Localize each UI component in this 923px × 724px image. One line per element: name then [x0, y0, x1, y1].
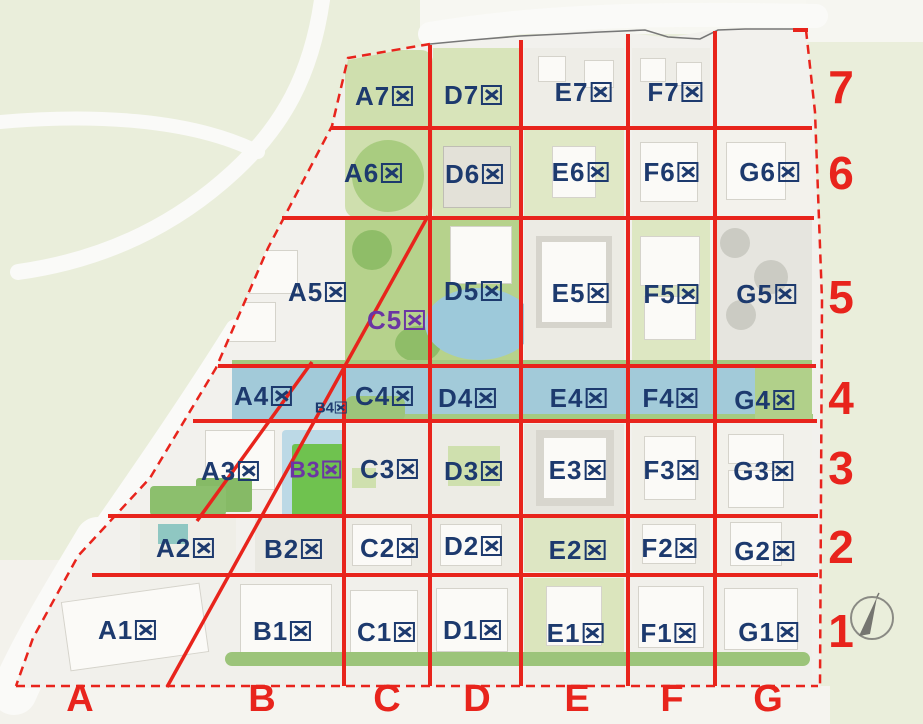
qu-district-character	[397, 459, 418, 480]
zone-label-a4: A4	[234, 383, 292, 409]
qu-district-character	[325, 282, 346, 303]
column-letter-c: C	[373, 680, 400, 718]
zone-label-d4: D4	[438, 385, 496, 411]
zone-label-e2: E2	[549, 537, 606, 563]
qu-district-character	[678, 284, 699, 305]
qu-district-character	[290, 621, 311, 642]
qu-district-character	[682, 82, 703, 103]
qu-district-character	[481, 281, 502, 302]
zone-code-text: A2	[156, 533, 191, 563]
zone-code-text: A6	[344, 158, 379, 188]
qu-district-character	[583, 623, 604, 644]
zone-label-c4: C4	[355, 383, 413, 409]
qu-district-character	[322, 460, 340, 478]
qu-district-character	[238, 461, 259, 482]
column-letter-b: B	[248, 680, 275, 718]
column-letter-g: G	[753, 680, 783, 718]
qu-district-character	[392, 386, 413, 407]
zone-label-c2: C2	[360, 535, 418, 561]
row-number-4: 4	[828, 375, 854, 421]
zone-code-text: E7	[555, 77, 589, 107]
zone-label-g5: G5	[736, 281, 796, 307]
zone-label-a1: A1	[98, 617, 156, 643]
qu-district-character	[588, 283, 609, 304]
zone-code-text: C1	[357, 617, 392, 647]
qu-district-character	[772, 461, 793, 482]
zone-code-text: E4	[550, 383, 584, 413]
zone-code-text: F4	[642, 383, 674, 413]
row-number-2: 2	[828, 524, 854, 570]
zone-code-text: F5	[643, 279, 675, 309]
zone-label-f4: F4	[642, 385, 697, 411]
zone-code-text: F2	[641, 533, 673, 563]
zone-code-text: G1	[738, 617, 775, 647]
column-letter-a: A	[66, 680, 93, 718]
zone-label-f3: F3	[643, 457, 698, 483]
zone-label-g2: G2	[734, 538, 794, 564]
zone-label-f1: F1	[640, 620, 695, 646]
column-letter-f: F	[660, 680, 683, 718]
row-number-1: 1	[828, 608, 854, 654]
zone-code-text: G3	[733, 456, 770, 486]
zone-code-text: C2	[360, 533, 395, 563]
zone-label-a7: A7	[355, 83, 413, 109]
zone-label-g1: G1	[738, 619, 798, 645]
qu-district-character	[773, 390, 794, 411]
qu-district-character	[271, 386, 292, 407]
zone-code-text: D2	[444, 531, 479, 561]
zone-code-text: G2	[734, 536, 771, 566]
zone-label-g4: G4	[734, 387, 794, 413]
zone-code-text: E2	[549, 535, 583, 565]
qu-district-character	[586, 388, 607, 409]
qu-district-character	[397, 538, 418, 559]
zone-label-e7: E7	[555, 79, 612, 105]
site-plan-map: A7D7E7F7A6D6E6F6G6A5D5E5F5G5A4C4D4E4F4G4…	[0, 0, 923, 724]
zone-code-text: A1	[98, 615, 133, 645]
qu-district-character	[678, 162, 699, 183]
zone-label-a5: A5	[288, 279, 346, 305]
qu-district-character	[193, 538, 214, 559]
qu-district-character	[773, 541, 794, 562]
zone-code-text: D6	[445, 159, 480, 189]
qu-district-character	[481, 85, 502, 106]
zone-label-d3: D3	[444, 458, 502, 484]
qu-district-character	[481, 461, 502, 482]
qu-district-character	[778, 162, 799, 183]
zone-code-text: D4	[438, 383, 473, 413]
zone-code-text: B2	[264, 534, 299, 564]
qu-district-character	[777, 622, 798, 643]
zone-label-b2: B2	[264, 536, 322, 562]
zone-label-e5: E5	[552, 280, 609, 306]
qu-district-character	[475, 388, 496, 409]
zone-label-e6: E6	[552, 159, 609, 185]
zone-code-text: A3	[201, 456, 236, 486]
zone-code-text: A7	[355, 81, 390, 111]
qu-district-character	[480, 620, 501, 641]
qu-district-character	[585, 460, 606, 481]
zone-label-d2: D2	[444, 533, 502, 559]
zone-label-c5: C5	[367, 307, 425, 333]
qu-district-character	[335, 401, 347, 413]
zone-code-text: B1	[253, 616, 288, 646]
zone-code-text: B4	[315, 400, 334, 417]
zone-code-text: D5	[444, 276, 479, 306]
zone-code-text: G6	[739, 157, 776, 187]
qu-district-character	[301, 539, 322, 560]
zone-code-text: E3	[549, 455, 583, 485]
zone-code-text: D1	[443, 615, 478, 645]
zone-code-text: G4	[734, 385, 771, 415]
zone-label-d5: D5	[444, 278, 502, 304]
qu-district-character	[481, 536, 502, 557]
column-letter-e: E	[564, 680, 589, 718]
row-number-3: 3	[828, 445, 854, 491]
zone-code-text: F7	[647, 77, 679, 107]
column-letter-d: D	[463, 680, 490, 718]
zone-code-text: F1	[640, 618, 672, 648]
zone-label-f5: F5	[643, 281, 698, 307]
zone-label-b4: B4	[315, 401, 347, 416]
zone-label-g3: G3	[733, 458, 793, 484]
qu-district-character	[675, 623, 696, 644]
qu-district-character	[678, 460, 699, 481]
zone-label-e4: E4	[550, 385, 607, 411]
labels-layer: A7D7E7F7A6D6E6F6G6A5D5E5F5G5A4C4D4E4F4G4…	[0, 0, 923, 724]
qu-district-character	[381, 163, 402, 184]
qu-district-character	[482, 164, 503, 185]
zone-label-f2: F2	[641, 535, 696, 561]
zone-label-d6: D6	[445, 161, 503, 187]
zone-code-text: B3	[289, 457, 320, 483]
qu-district-character	[591, 82, 612, 103]
zone-code-text: A5	[288, 277, 323, 307]
zone-code-text: A4	[234, 381, 269, 411]
row-number-7: 7	[828, 64, 854, 110]
qu-district-character	[135, 620, 156, 641]
qu-district-character	[775, 284, 796, 305]
zone-label-c1: C1	[357, 619, 415, 645]
zone-code-text: G5	[736, 279, 773, 309]
row-number-6: 6	[828, 150, 854, 196]
qu-district-character	[394, 622, 415, 643]
zone-label-a6: A6	[344, 160, 402, 186]
zone-label-b1: B1	[253, 618, 311, 644]
qu-district-character	[676, 538, 697, 559]
row-number-5: 5	[828, 274, 854, 320]
qu-district-character	[392, 86, 413, 107]
zone-label-b3: B3	[289, 459, 341, 482]
zone-label-a3: A3	[201, 458, 259, 484]
zone-code-text: C3	[360, 454, 395, 484]
zone-label-c3: C3	[360, 456, 418, 482]
zone-code-text: D7	[444, 80, 479, 110]
qu-district-character	[677, 388, 698, 409]
zone-code-text: C5	[367, 305, 402, 335]
qu-district-character	[404, 310, 425, 331]
zone-code-text: D3	[444, 456, 479, 486]
qu-district-character	[588, 162, 609, 183]
zone-code-text: C4	[355, 381, 390, 411]
zone-code-text: E1	[547, 618, 581, 648]
zone-label-g6: G6	[739, 159, 799, 185]
zone-label-d1: D1	[443, 617, 501, 643]
zone-label-a2: A2	[156, 535, 214, 561]
zone-label-e3: E3	[549, 457, 606, 483]
zone-label-e1: E1	[547, 620, 604, 646]
zone-label-f7: F7	[647, 79, 702, 105]
qu-district-character	[585, 540, 606, 561]
zone-code-text: E5	[552, 278, 586, 308]
zone-code-text: F6	[643, 157, 675, 187]
zone-label-d7: D7	[444, 82, 502, 108]
zone-code-text: E6	[552, 157, 586, 187]
zone-code-text: F3	[643, 455, 675, 485]
zone-label-f6: F6	[643, 159, 698, 185]
